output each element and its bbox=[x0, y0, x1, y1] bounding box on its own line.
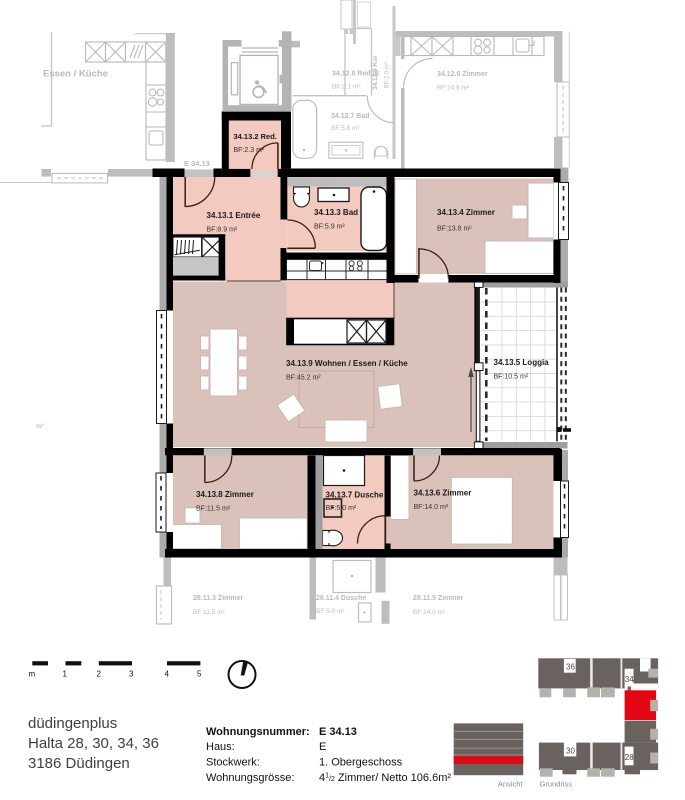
svg-text:Wohnungsgrösse:: Wohnungsgrösse: bbox=[206, 772, 294, 784]
svg-text:36: 36 bbox=[566, 663, 575, 672]
svg-text:3: 3 bbox=[129, 670, 134, 679]
svg-text:BF:14.0 m²: BF:14.0 m² bbox=[414, 504, 449, 511]
svg-text:34.12.6 Zimmer: 34.12.6 Zimmer bbox=[437, 71, 488, 78]
svg-text:34.13.8 Zimmer: 34.13.8 Zimmer bbox=[196, 490, 254, 499]
svg-text:34.13.9 Wohnen / Essen / Küche: 34.13.9 Wohnen / Essen / Küche bbox=[286, 359, 408, 368]
svg-text:m: m bbox=[29, 670, 36, 679]
svg-text:2: 2 bbox=[97, 670, 102, 679]
svg-text:28: 28 bbox=[625, 753, 634, 762]
svg-text:28.11.3 Zimmer: 28.11.3 Zimmer bbox=[193, 595, 243, 602]
svg-text:Essen / Küche: Essen / Küche bbox=[43, 69, 108, 80]
svg-text:m²: m² bbox=[36, 423, 45, 430]
svg-text:BF:8.9 m²: BF:8.9 m² bbox=[207, 227, 238, 234]
svg-text:4: 4 bbox=[165, 670, 170, 679]
svg-text:Haus:: Haus: bbox=[206, 741, 235, 753]
svg-text:BF:5.9 m²: BF:5.9 m² bbox=[314, 224, 345, 231]
svg-text:BF:11.5 m²: BF:11.5 m² bbox=[193, 609, 226, 616]
svg-text:Grundriss: Grundriss bbox=[540, 780, 573, 789]
svg-text:BF:14.0 m²: BF:14.0 m² bbox=[413, 609, 446, 616]
svg-text:BF:14.6 m²: BF:14.6 m² bbox=[437, 85, 470, 92]
svg-text:Wohnungsnummer:: Wohnungsnummer: bbox=[206, 726, 310, 738]
svg-text:28.11.5 Zimmer: 28.11.5 Zimmer bbox=[413, 595, 463, 602]
svg-text:34.13.6 Zimmer: 34.13.6 Zimmer bbox=[414, 489, 472, 498]
svg-text:Halta 28, 30, 34, 36: Halta 28, 30, 34, 36 bbox=[28, 735, 159, 752]
svg-text:E 34.13: E 34.13 bbox=[184, 159, 210, 168]
svg-text:34.12.7 Bad: 34.12.7 Bad bbox=[331, 113, 370, 120]
svg-text:Ansicht: Ansicht bbox=[498, 780, 524, 789]
svg-text:3186 Düdingen: 3186 Düdingen bbox=[28, 755, 130, 772]
svg-text:34.13.1 Entrée: 34.13.1 Entrée bbox=[207, 211, 261, 220]
svg-text:BF:2.1 m²: BF:2.1 m² bbox=[332, 84, 361, 91]
svg-text:BF:2.0 m²: BF:2.0 m² bbox=[385, 62, 391, 88]
svg-text:BF:13.8 m²: BF:13.8 m² bbox=[437, 226, 472, 233]
svg-text:1. Obergeschoss: 1. Obergeschoss bbox=[319, 757, 403, 769]
svg-text:28.11.4 Dusche: 28.11.4 Dusche bbox=[316, 595, 366, 602]
svg-text:E 34.13: E 34.13 bbox=[319, 726, 357, 738]
svg-text:BF:5.0 m²: BF:5.0 m² bbox=[316, 608, 345, 615]
svg-text:BF:45.2 m²: BF:45.2 m² bbox=[286, 375, 321, 382]
svg-text:E: E bbox=[319, 741, 326, 753]
svg-text:34.12.9 Kor: 34.12.9 Kor bbox=[372, 55, 379, 90]
svg-text:34.13.2 Red.: 34.13.2 Red. bbox=[234, 132, 277, 141]
svg-text:34.13.4 Zimmer: 34.13.4 Zimmer bbox=[437, 208, 495, 217]
svg-text:BF:5.0 m²: BF:5.0 m² bbox=[326, 505, 357, 512]
svg-text:41/2 Zimmer/ Netto 106.6m²: 41/2 Zimmer/ Netto 106.6m² bbox=[319, 772, 451, 784]
svg-text:1: 1 bbox=[63, 670, 68, 679]
svg-text:BF:5.8 m²: BF:5.8 m² bbox=[331, 125, 360, 132]
svg-text:5: 5 bbox=[197, 670, 202, 679]
svg-text:34.13.3 Bad: 34.13.3 Bad bbox=[314, 208, 358, 217]
svg-text:BF:10.5 m²: BF:10.5 m² bbox=[494, 374, 529, 381]
svg-text:BF:11.5 m²: BF:11.5 m² bbox=[196, 506, 231, 513]
svg-text:34.13.5 Loggia: 34.13.5 Loggia bbox=[494, 358, 550, 367]
svg-text:düdingenplus: düdingenplus bbox=[28, 715, 117, 732]
svg-text:34: 34 bbox=[625, 675, 634, 684]
svg-text:Stockwerk:: Stockwerk: bbox=[206, 757, 260, 769]
svg-text:34.13.7 Dusche: 34.13.7 Dusche bbox=[326, 491, 384, 500]
svg-text:BF:2.3 m²: BF:2.3 m² bbox=[234, 147, 265, 154]
svg-text:30: 30 bbox=[566, 747, 575, 756]
